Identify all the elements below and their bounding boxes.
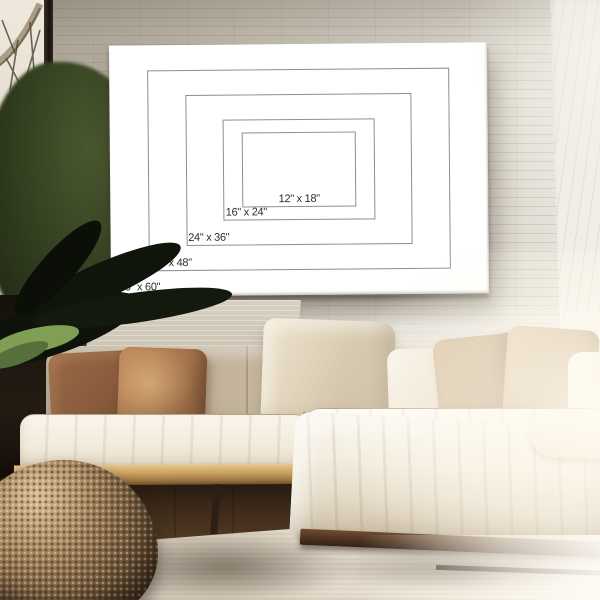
size-label-12x18: 12" x 18" (279, 194, 320, 205)
sunlight-glow-top (440, 0, 600, 250)
living-room-scene: 12" x 18" 16" x 24" 24" x 36" 32" x 48" … (0, 0, 600, 600)
sunlight-streak-floor (360, 535, 600, 600)
